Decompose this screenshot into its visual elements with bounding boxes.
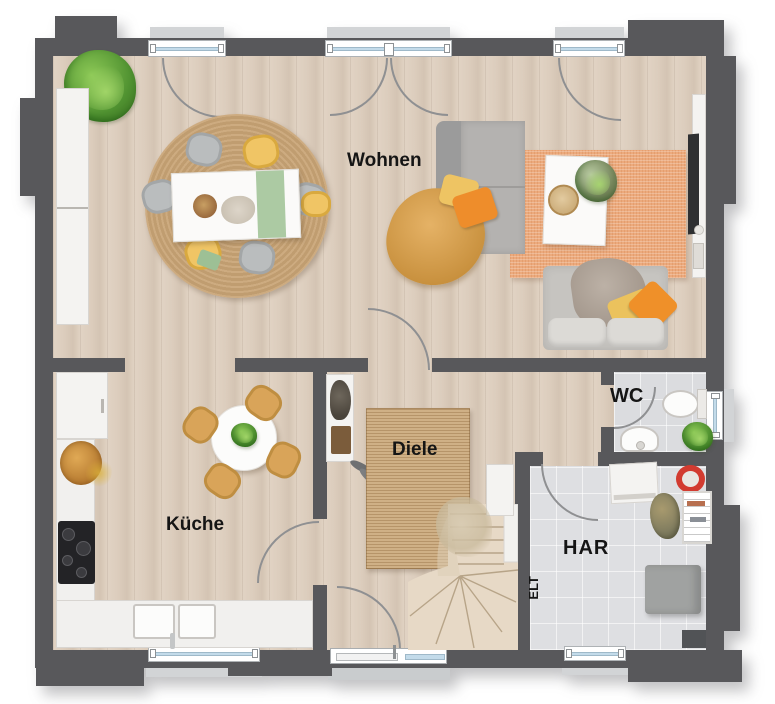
tv-deco-books [693, 243, 704, 269]
cabinet-seam [57, 207, 88, 209]
pier-left-mid [20, 98, 37, 196]
tall-cabinet [56, 88, 89, 325]
window-hinge [711, 393, 720, 399]
fridge-handle [101, 399, 104, 413]
burner [76, 567, 87, 578]
wall-kitchen-diele-lower [313, 585, 327, 650]
pier-top-left [55, 16, 117, 42]
washing-machine [609, 462, 659, 504]
window-hinge [218, 44, 224, 53]
stair-landing [486, 464, 514, 516]
room-label-wc: WC [610, 385, 643, 408]
window [553, 40, 625, 57]
centerpiece-bowl [193, 194, 218, 219]
basin-drain [636, 441, 645, 450]
tv-deco-candle [694, 225, 704, 235]
wall-wc-left-a [601, 372, 614, 385]
cooktop [58, 521, 95, 584]
window-hinge [327, 44, 333, 53]
room-label-har: HAR [563, 537, 609, 560]
sink-basin [133, 604, 175, 639]
window-mullion [384, 43, 394, 56]
pier-bottom-left [36, 650, 144, 686]
floor-plan-image: Wohnen Küche Diele WC HAR ELT [0, 0, 775, 704]
room-label-wohnen: Wohnen [347, 150, 422, 172]
exterior-sill [724, 389, 734, 442]
shelf-books [331, 426, 351, 454]
table-tray [547, 184, 579, 216]
washbasin [620, 426, 659, 452]
drying-rack [682, 491, 712, 544]
entrance-step [328, 666, 450, 680]
room-label-elt: ELT [526, 576, 541, 600]
dining-table [171, 169, 301, 242]
pier-top-right [628, 20, 724, 42]
pier-bottom-right [628, 650, 742, 682]
sink-basin [178, 604, 216, 639]
burner [76, 541, 91, 556]
toilet-bowl [662, 390, 699, 418]
window-glass [153, 47, 221, 51]
shelf-vase-flowers [330, 380, 351, 420]
window-hinge [617, 44, 623, 53]
wall-kitchen-living-a [53, 358, 125, 372]
sofa-two-cushion [607, 318, 664, 347]
window-hinge [150, 649, 156, 658]
table-runner [256, 170, 286, 238]
window-glass [153, 652, 255, 656]
fridge [56, 372, 108, 439]
dining-chair [301, 191, 331, 217]
coffee-table-plant [575, 160, 617, 202]
window-hinge [252, 649, 258, 658]
hung-cloth [690, 517, 706, 522]
entrance-door-handle [393, 645, 396, 659]
wall-wc-left-b [601, 427, 614, 452]
wall-living-diele [432, 358, 706, 372]
toilet-tank [697, 389, 707, 419]
wall-kitchen-living-b [235, 358, 368, 372]
window-hinge [618, 649, 624, 658]
utility-unit [645, 565, 701, 614]
wall-left [35, 38, 53, 668]
window-hinge [566, 649, 572, 658]
hung-cloth [687, 501, 705, 506]
floor-plan: Wohnen Küche Diele WC HAR ELT [0, 0, 775, 704]
wall-right [706, 38, 724, 668]
entrance-door-leaf [336, 653, 398, 661]
wall-kitchen-diele-upper [313, 372, 327, 519]
red-bucket [676, 465, 705, 493]
sofa-two-cushion [548, 318, 606, 347]
hall-shelf [326, 374, 354, 462]
faucet [170, 633, 175, 649]
window-hinge [150, 44, 156, 53]
har-window [564, 646, 626, 661]
window-glass [713, 396, 717, 435]
pier-right-upper [724, 56, 736, 204]
window-hinge [444, 44, 450, 53]
kitchen-table-plant [231, 423, 257, 447]
entrance-door [330, 648, 447, 664]
burner [62, 528, 75, 541]
window-hinge [555, 44, 561, 53]
window-glass [569, 652, 621, 656]
window-glass [558, 47, 620, 51]
centerpiece-deco [221, 195, 256, 224]
entrance-door-glass [405, 654, 445, 660]
wc-plant [682, 422, 713, 451]
burner [62, 555, 73, 566]
window-double [325, 40, 452, 57]
room-label-diele: Diele [392, 439, 437, 461]
tv-screen [688, 134, 699, 235]
window [148, 40, 226, 57]
room-label-kueche: Küche [166, 514, 224, 536]
doormat [682, 630, 706, 648]
pier-right-lower [724, 505, 740, 631]
washer-panel [614, 493, 656, 500]
